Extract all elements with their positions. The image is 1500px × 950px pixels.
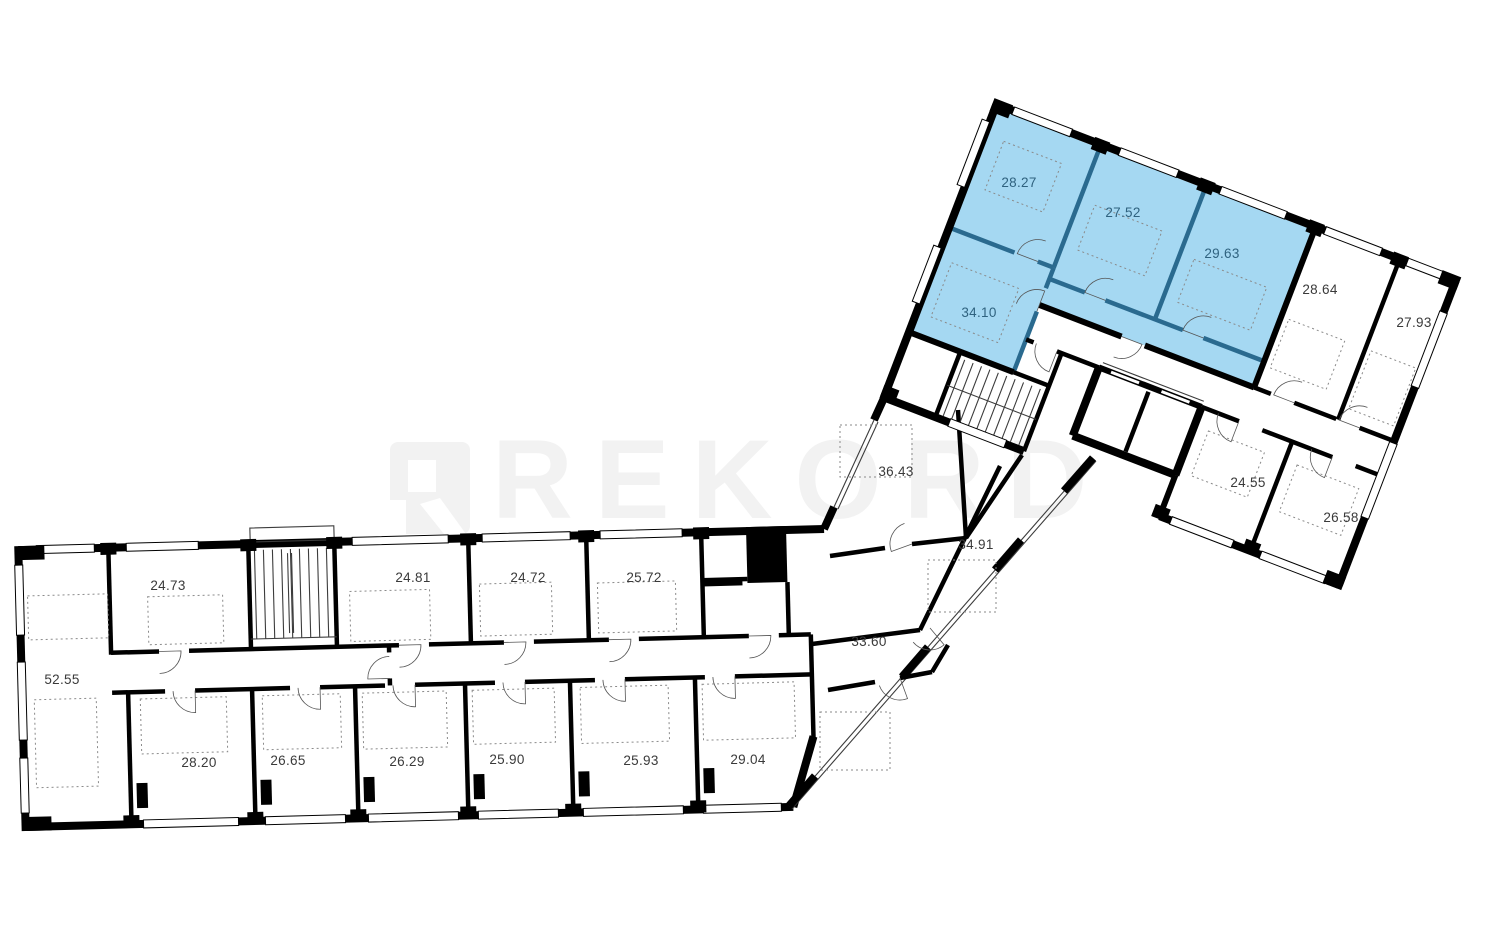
room-area-label-2472: 24.72 [510, 570, 545, 585]
room-area-label-2590: 25.90 [489, 752, 524, 767]
room-area-label-2665: 26.65 [270, 753, 305, 768]
room-area-label-2572: 25.72 [626, 570, 661, 585]
room-area-label-3491: 34.91 [958, 537, 993, 552]
watermark-text: REKORD [492, 417, 1109, 542]
floor-plan-svg: REKORD [0, 0, 1500, 950]
room-area-label-2752[interactable]: 27.52 [1105, 205, 1140, 220]
watermark-logo-icon [390, 442, 470, 534]
room-area-label-2658: 26.58 [1323, 510, 1358, 525]
room-area-label-2820: 28.20 [181, 755, 216, 770]
floor-plan-page: REKORD [0, 0, 1500, 950]
watermark: REKORD [390, 417, 1109, 542]
room-area-label-2473: 24.73 [150, 578, 185, 593]
piers [18, 527, 716, 831]
room-area-label-3360: 33.60 [851, 634, 886, 649]
room-area-label-2864: 28.64 [1302, 282, 1337, 297]
room-area-label-3643: 36.43 [878, 464, 913, 479]
room-area-label-2593: 25.93 [623, 753, 658, 768]
room-area-label-2629: 26.29 [389, 754, 424, 769]
doors [879, 523, 944, 706]
room-area-label-2904: 29.04 [730, 752, 765, 767]
room-area-label-2793: 27.93 [1396, 315, 1431, 330]
left-wing [14, 513, 831, 831]
room-area-label-2481: 24.81 [395, 570, 430, 585]
room-area-label-5255: 52.55 [44, 672, 79, 687]
room-area-label-3410[interactable]: 34.10 [961, 305, 996, 320]
room-area-label-2455: 24.55 [1230, 475, 1265, 490]
room-area-label-2963[interactable]: 29.63 [1204, 246, 1239, 261]
room-area-label-2827[interactable]: 28.27 [1001, 175, 1036, 190]
